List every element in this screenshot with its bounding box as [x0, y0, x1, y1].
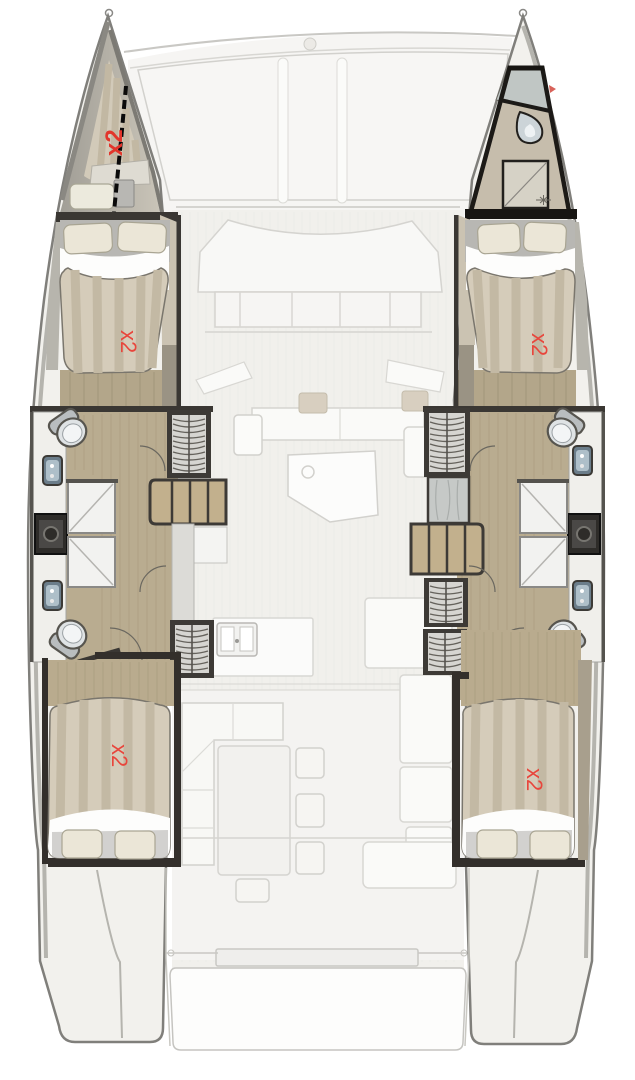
svg-text:x2: x2: [101, 129, 128, 156]
svg-text:x2: x2: [107, 744, 132, 767]
svg-text:x2: x2: [116, 330, 141, 353]
svg-text:x2: x2: [522, 768, 547, 791]
svg-text:x2: x2: [527, 333, 552, 356]
